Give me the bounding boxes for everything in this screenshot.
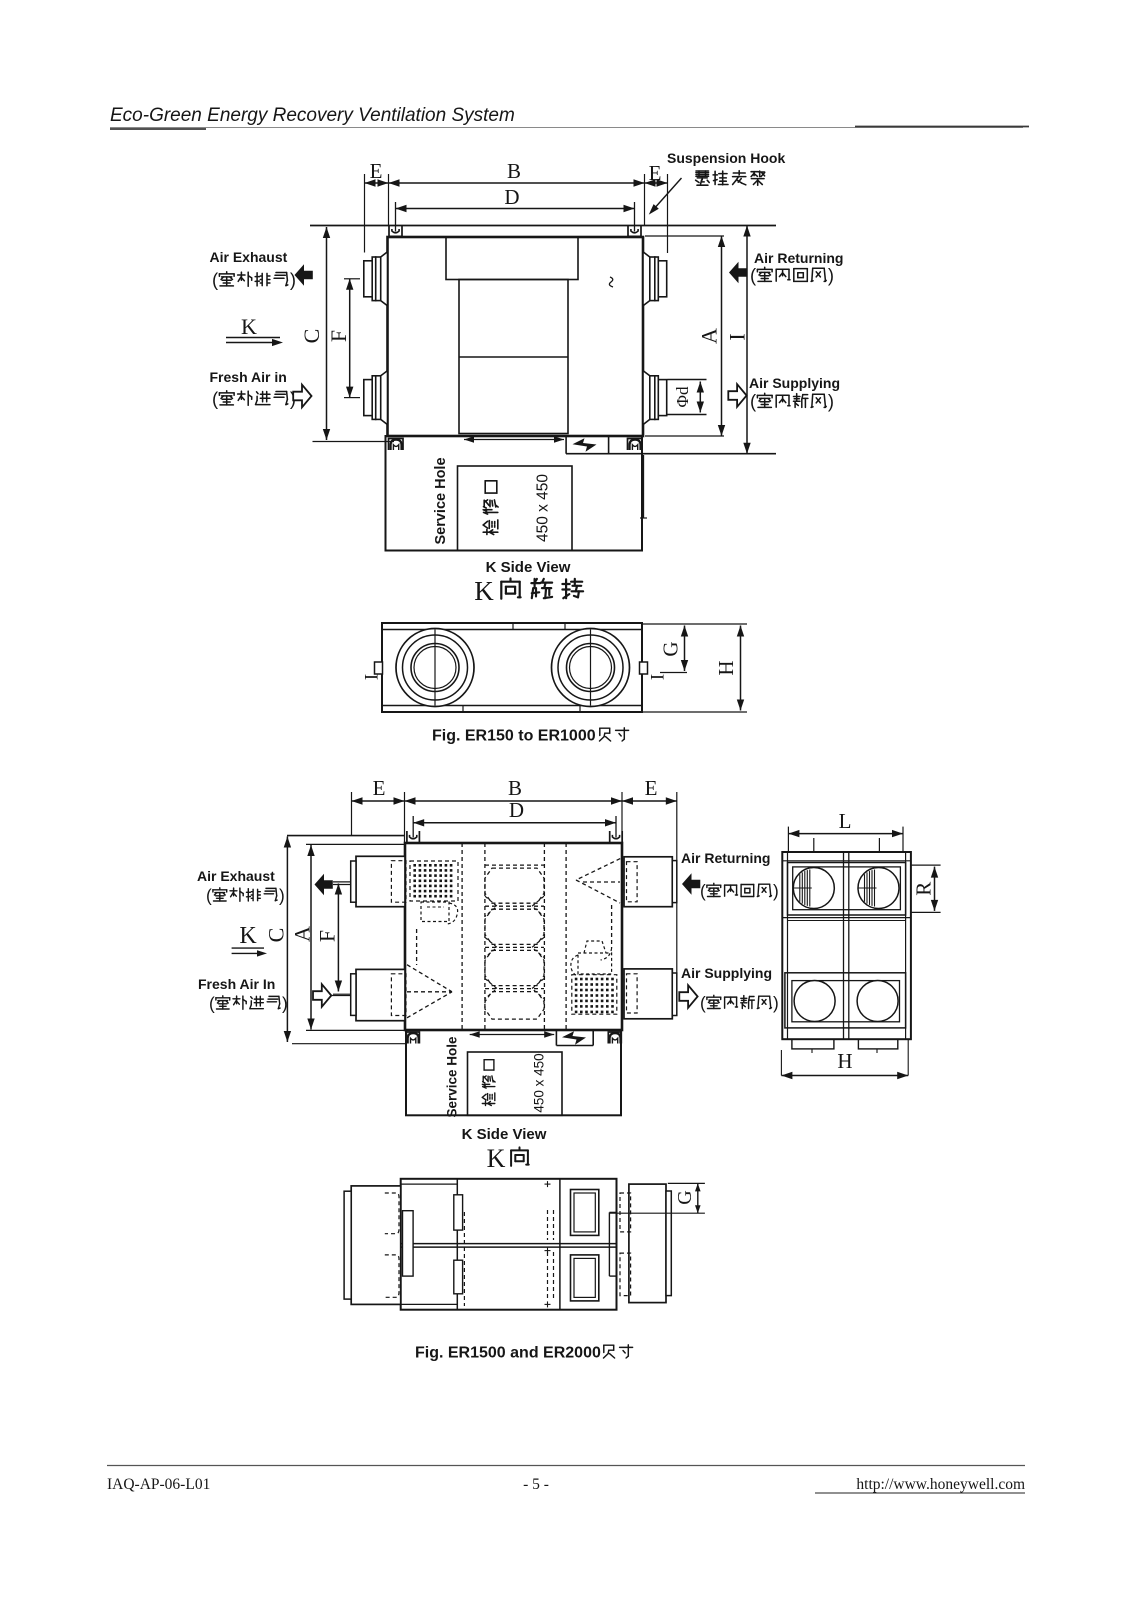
svg-text:E: E [370,159,383,183]
svg-text:Fresh Air In: Fresh Air In [198,976,275,992]
svg-text:Fig. ER150 to ER1000: Fig. ER150 to ER1000 [432,728,596,745]
svg-text:Service Hole: Service Hole [433,457,449,544]
svg-text:H: H [714,660,738,675]
svg-text:IAQ-AP-06-L01: IAQ-AP-06-L01 [107,1476,210,1493]
svg-text:E: E [649,161,662,185]
svg-text:): ) [279,885,285,905]
svg-text:(: ( [750,391,757,412]
svg-text:F: F [315,930,340,942]
svg-text:R: R [911,882,935,896]
svg-text:- 5 -: - 5 - [523,1476,549,1493]
svg-text:K: K [487,1144,506,1173]
svg-text:(: ( [209,993,215,1013]
svg-text:Service Hole: Service Hole [445,1036,460,1118]
svg-text:E: E [373,776,386,800]
svg-text:(: ( [750,265,757,286]
svg-text:Air Returning: Air Returning [681,850,770,866]
svg-text:(: ( [206,885,212,905]
svg-text:K: K [239,923,257,949]
svg-text:): ) [773,993,779,1013]
svg-text:B: B [507,159,521,183]
svg-text:http://www.honeywell.com: http://www.honeywell.com [856,1476,1025,1493]
svg-text:): ) [290,269,296,290]
svg-text:(: ( [700,881,706,901]
svg-text:D: D [504,185,519,209]
svg-text:K Side View: K Side View [486,559,571,576]
svg-text:B: B [508,776,522,800]
svg-text:Fresh Air in: Fresh Air in [210,369,287,385]
svg-text:(: ( [700,993,706,1013]
svg-text:Φd: Φd [673,386,692,407]
svg-text:Suspension Hook: Suspension Hook [667,150,785,166]
svg-text:Air Supplying: Air Supplying [681,965,772,981]
svg-text:450 x 450: 450 x 450 [534,474,551,542]
svg-text:C: C [264,928,289,943]
svg-text:A: A [697,328,722,344]
svg-text:I: I [362,674,383,680]
svg-text:K: K [241,314,257,339]
svg-text:F: F [326,330,351,342]
svg-text:): ) [773,881,779,901]
svg-text:H: H [837,1049,852,1073]
svg-text:D: D [509,798,524,822]
svg-text:Air Supplying: Air Supplying [749,375,840,391]
svg-text:I: I [648,674,669,680]
svg-text:(: ( [212,388,219,409]
svg-text:G: G [674,1190,696,1204]
svg-text:C: C [299,329,324,344]
svg-text:K: K [474,576,494,606]
svg-text:G: G [658,641,682,656]
svg-text:E: E [645,776,658,800]
svg-text:Eco-Green Energy Recovery Vent: Eco-Green Energy Recovery Ventilation Sy… [110,105,515,126]
svg-text:Air Returning: Air Returning [754,250,843,266]
svg-text:I: I [725,333,750,340]
svg-text:Fig. ER1500 and ER2000: Fig. ER1500 and ER2000 [415,1345,601,1362]
svg-text:): ) [828,265,834,286]
svg-text:A: A [290,926,315,942]
svg-text:(: ( [212,269,219,290]
svg-text:Air Exhaust: Air Exhaust [210,249,288,265]
svg-text:450 x 450: 450 x 450 [532,1053,547,1112]
svg-text:Air Exhaust: Air Exhaust [197,868,275,884]
svg-text:K Side View: K Side View [462,1126,547,1143]
svg-text:): ) [282,993,288,1013]
svg-text:): ) [828,391,834,412]
svg-text:L: L [839,809,852,833]
